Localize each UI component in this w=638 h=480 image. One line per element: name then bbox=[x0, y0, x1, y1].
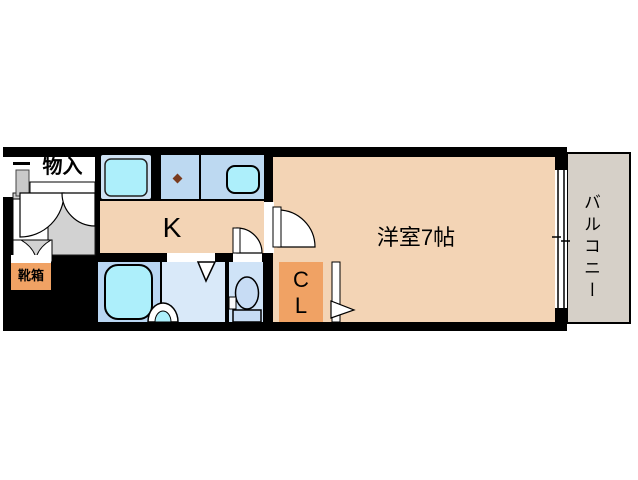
toilet-doorway bbox=[233, 253, 262, 262]
shoe-box bbox=[11, 263, 51, 290]
toilet-paper-holder bbox=[229, 297, 236, 309]
floor-plan-drawing bbox=[0, 0, 638, 480]
wall-bottom bbox=[3, 322, 567, 331]
floor-plan: 物入 靴箱 K 洋室7帖 C L バルコニー bbox=[0, 0, 638, 480]
meter-box bbox=[16, 170, 29, 196]
washroom-doorway bbox=[167, 253, 215, 262]
entry-dash-mark bbox=[13, 162, 30, 165]
toilet-bowl bbox=[236, 277, 259, 309]
wall-washroom-toilet bbox=[225, 262, 229, 322]
wall-window-bottom bbox=[555, 308, 567, 331]
closet-floor bbox=[279, 262, 323, 322]
washing-machine-pan-inner bbox=[105, 159, 147, 196]
kitchen-sink bbox=[227, 166, 259, 193]
room-door-leaf bbox=[273, 207, 281, 247]
shoe-box-front bbox=[11, 255, 51, 263]
wall-left bbox=[3, 197, 13, 262]
wall-top bbox=[3, 147, 567, 157]
balcony-floor bbox=[567, 153, 630, 323]
balcony-window bbox=[555, 170, 567, 308]
wall-window-top bbox=[555, 147, 567, 170]
hall-door-leaf bbox=[233, 228, 240, 253]
storage-closet-front bbox=[30, 182, 95, 193]
toilet-tank bbox=[233, 310, 261, 322]
bathtub bbox=[105, 265, 152, 319]
